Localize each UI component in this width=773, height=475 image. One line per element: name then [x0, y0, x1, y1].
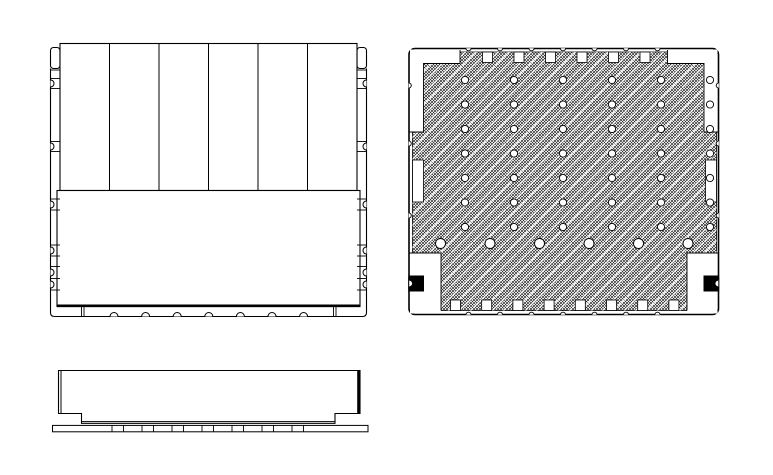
edge-notch-left — [51, 247, 55, 254]
technical-drawing — [0, 0, 773, 475]
edge-notch-left — [51, 80, 55, 87]
bottom-pad — [544, 300, 554, 311]
via-dot — [608, 199, 615, 206]
via-dot — [510, 199, 517, 206]
border-notch-left — [409, 213, 412, 218]
border-notch-right — [716, 141, 719, 146]
bottom-bump — [173, 313, 181, 317]
via-dot — [657, 101, 664, 108]
bottom-pad — [669, 300, 679, 311]
pcb-strip — [53, 425, 369, 431]
via-dot — [706, 125, 713, 132]
border-notch-bottom — [655, 312, 660, 315]
via-dot — [559, 174, 566, 181]
via-dot — [657, 150, 664, 157]
polarity-notch-left — [409, 280, 412, 287]
bottom-bump — [110, 313, 118, 317]
top-pad — [514, 52, 524, 63]
border-notch-bottom — [592, 312, 597, 315]
via-dot — [461, 125, 468, 132]
bottom-bump — [300, 313, 308, 317]
border-notch-right — [716, 213, 719, 218]
via-dot — [559, 125, 566, 132]
top-pad — [609, 52, 619, 63]
via-dot — [461, 76, 468, 83]
via-dot — [657, 174, 664, 181]
bottom-pad — [513, 300, 523, 311]
via-dot — [510, 125, 517, 132]
via-dot — [608, 76, 615, 83]
border-notch-left — [409, 141, 412, 146]
border-notch-top — [466, 48, 471, 51]
via-dot — [510, 223, 517, 230]
edge-notch-right — [363, 269, 367, 276]
via-dot — [608, 223, 615, 230]
top-pad — [483, 52, 493, 63]
bottom-pad — [607, 300, 617, 311]
body-outline — [59, 371, 361, 424]
via-dot — [461, 199, 468, 206]
via-dot — [510, 174, 517, 181]
bottom-pad — [482, 300, 492, 311]
via-dot — [608, 174, 615, 181]
via-dot — [461, 150, 468, 157]
border-notch-top — [655, 48, 660, 51]
via-dot — [608, 101, 615, 108]
bottom-pad — [638, 300, 648, 311]
bottom-bump — [205, 313, 213, 317]
border-notch-bottom — [466, 312, 471, 315]
border-notch-right — [716, 83, 719, 88]
bottom-view — [408, 48, 719, 315]
via-dot-large — [634, 239, 644, 249]
via-dot-large — [683, 239, 693, 249]
mount-tab-right — [357, 48, 367, 69]
via-dot — [510, 101, 517, 108]
via-dot — [706, 76, 713, 83]
border-notch-bottom — [560, 312, 565, 315]
via-dot — [706, 101, 713, 108]
via-dot — [510, 76, 517, 83]
via-dot-large — [485, 239, 495, 249]
edge-notch-left — [51, 201, 55, 208]
top-pad — [546, 52, 556, 63]
via-dot — [657, 76, 664, 83]
via-dot — [559, 150, 566, 157]
border-notch-top — [560, 48, 565, 51]
border-notch-bottom — [497, 312, 502, 315]
via-dot — [461, 174, 468, 181]
via-dot — [706, 174, 713, 181]
via-dot — [706, 150, 713, 157]
edge-notch-right — [363, 143, 367, 150]
via-dot — [510, 150, 517, 157]
via-dot — [706, 199, 713, 206]
border-notch-bottom — [623, 312, 628, 315]
via-dot — [559, 199, 566, 206]
via-dot-large — [584, 239, 594, 249]
border-notch-top — [497, 48, 502, 51]
via-dot — [461, 101, 468, 108]
via-dot-large — [535, 239, 545, 249]
bottom-bump — [268, 313, 276, 317]
via-dot — [559, 76, 566, 83]
via-dot — [657, 125, 664, 132]
label-plate — [57, 191, 360, 307]
top-pad — [577, 52, 587, 63]
edge-notch-right — [363, 281, 367, 288]
border-notch-top — [623, 48, 628, 51]
edge-notch-right — [363, 201, 367, 208]
edge-notch-right — [363, 80, 367, 87]
mount-tab-left — [51, 48, 61, 69]
border-notch-bottom — [529, 312, 534, 315]
via-dot — [706, 223, 713, 230]
bottom-pad — [575, 300, 585, 311]
via-dot — [657, 223, 664, 230]
border-notch-top — [529, 48, 534, 51]
bottom-bump — [236, 313, 244, 317]
side-view — [53, 371, 369, 432]
edge-notch-left — [51, 269, 55, 276]
via-dot — [461, 223, 468, 230]
via-dot-large — [436, 239, 446, 249]
top-pad — [640, 52, 650, 63]
via-dot — [608, 125, 615, 132]
bottom-pad — [451, 300, 461, 311]
bottom-bump — [142, 313, 150, 317]
polarity-notch-right — [715, 280, 718, 287]
drawing-canvas — [0, 0, 773, 475]
via-dot — [657, 199, 664, 206]
via-dot — [608, 150, 615, 157]
front-view — [51, 44, 367, 317]
border-notch-left — [409, 83, 412, 88]
edge-notch-right — [363, 247, 367, 254]
via-dot — [559, 101, 566, 108]
border-notch-top — [592, 48, 597, 51]
side-pad-left — [413, 160, 424, 202]
via-dot — [559, 223, 566, 230]
edge-notch-left — [51, 281, 55, 288]
edge-notch-left — [51, 143, 55, 150]
